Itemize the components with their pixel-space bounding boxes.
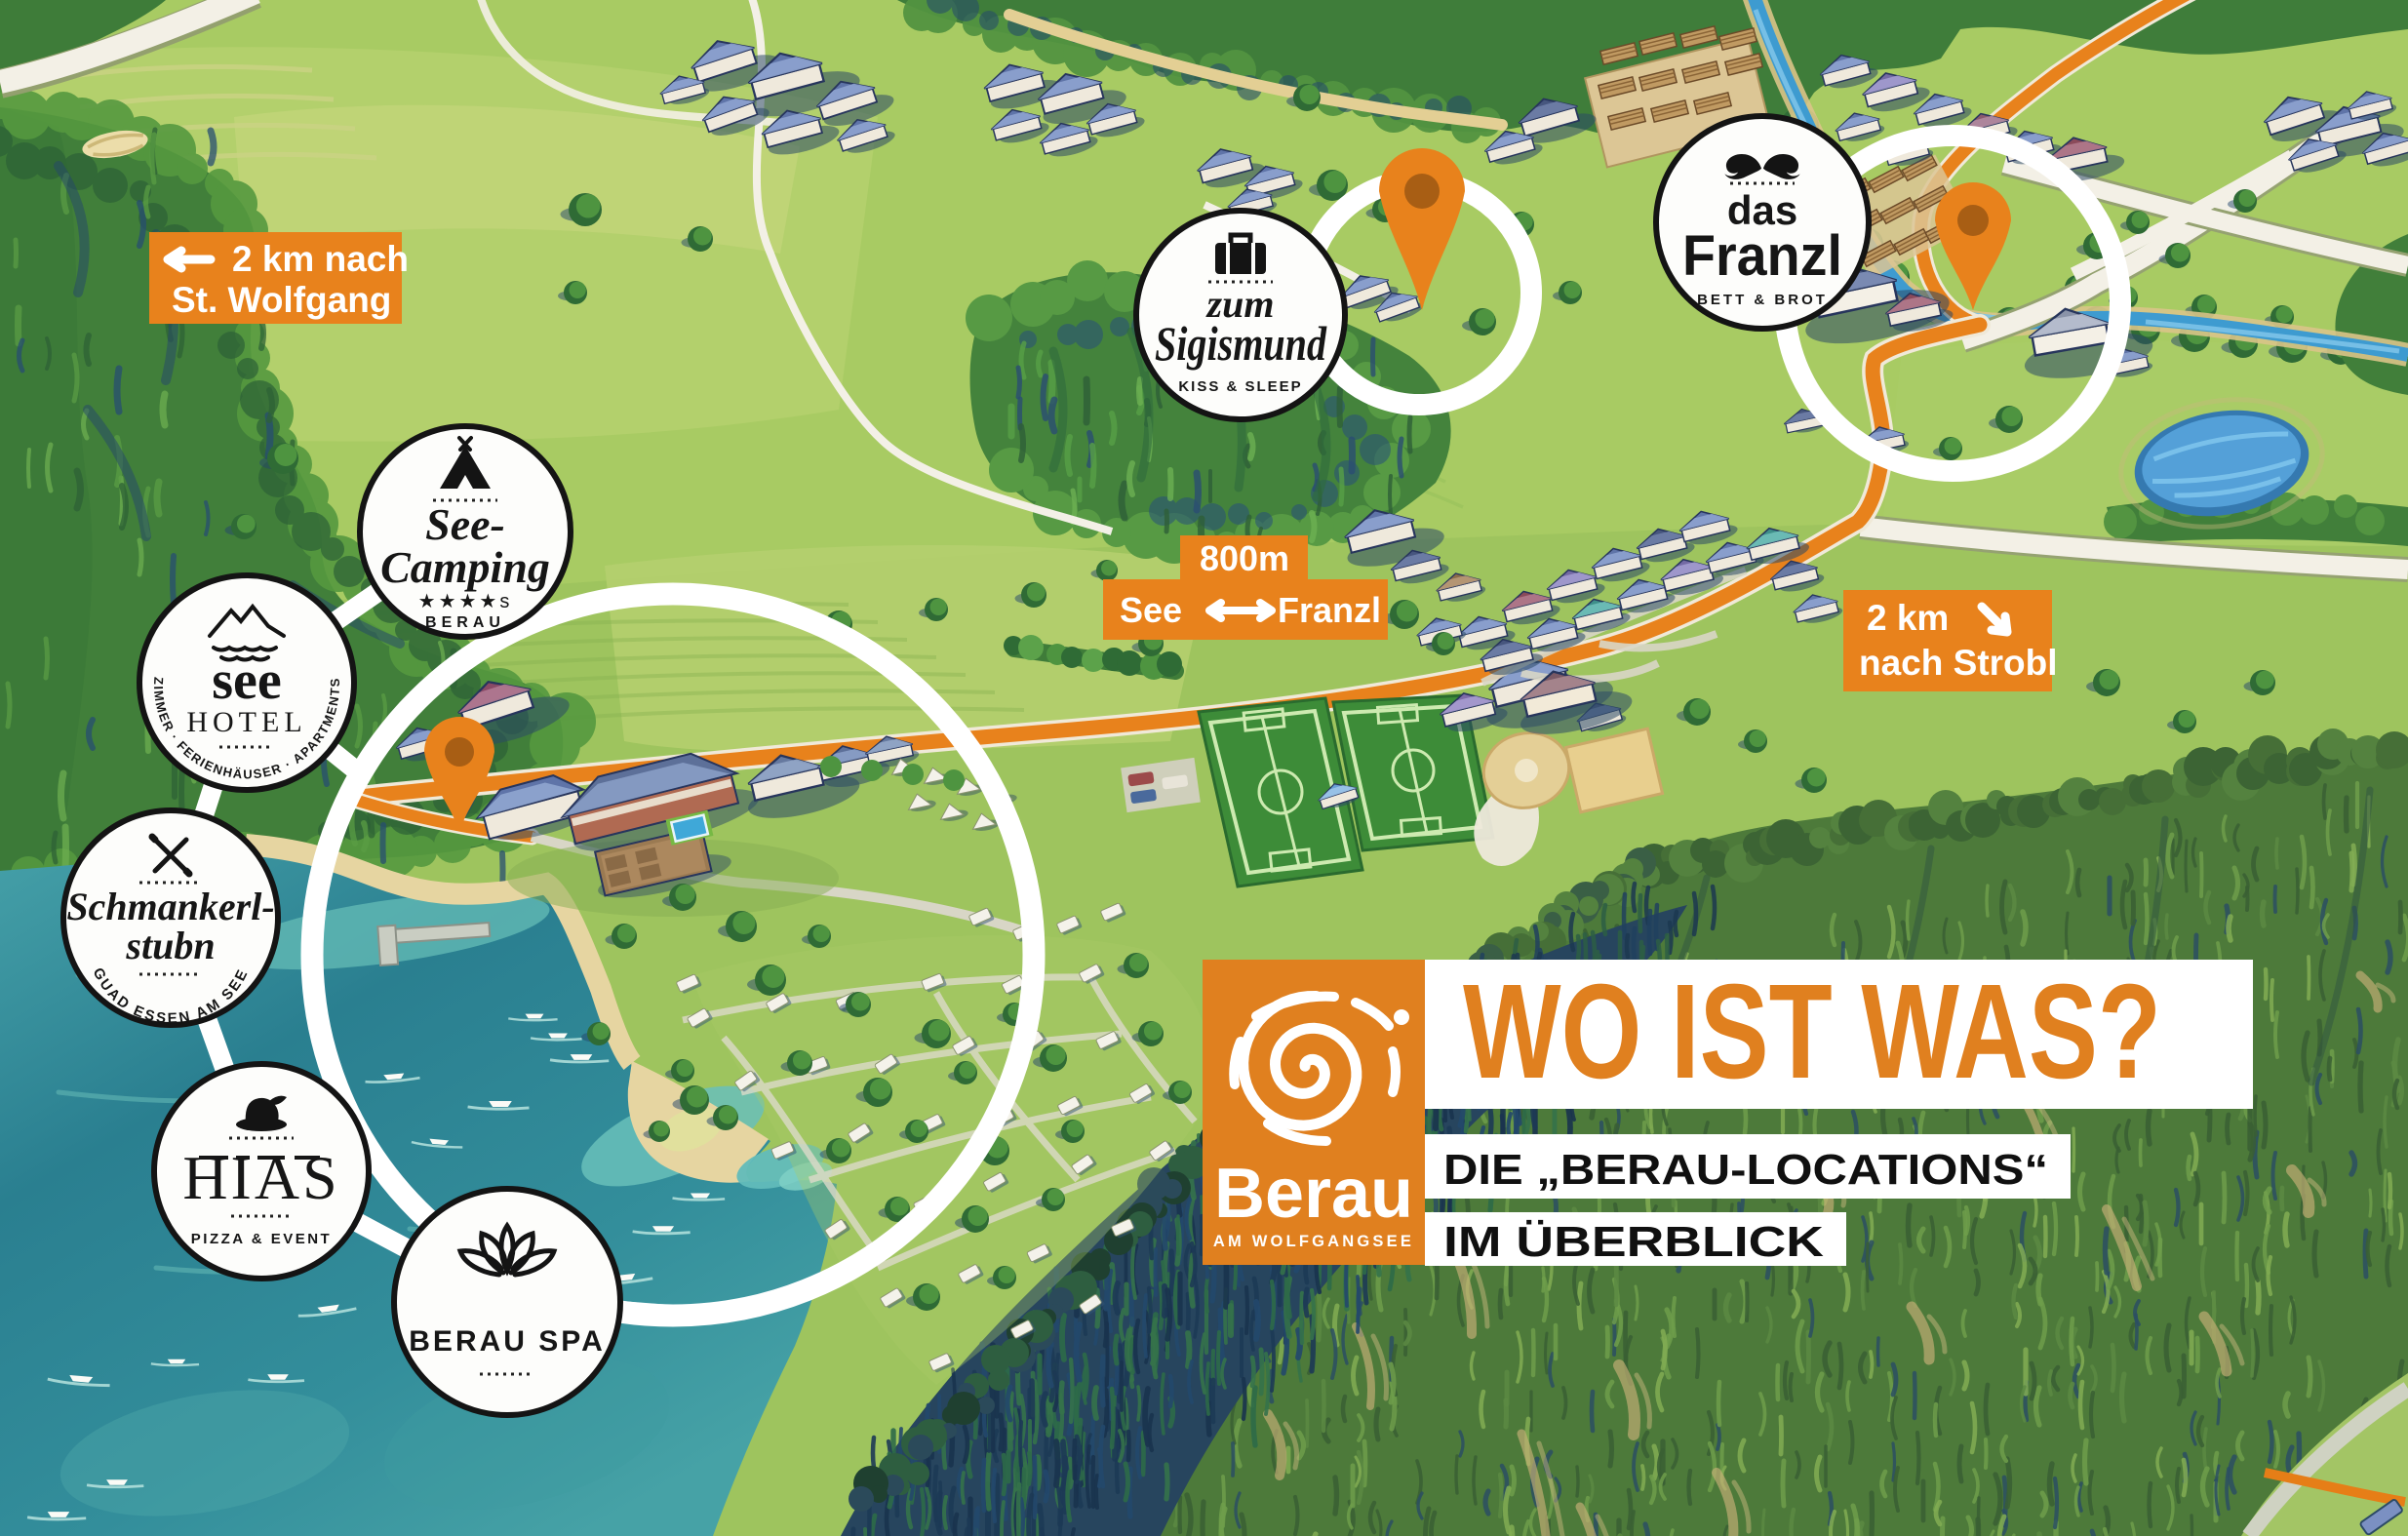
svg-text:Schmankerl-: Schmankerl- — [66, 885, 274, 928]
svg-text:KISS & SLEEP: KISS & SLEEP — [1178, 378, 1302, 395]
svg-text:PIZZA & EVENT: PIZZA & EVENT — [191, 1231, 332, 1247]
svg-text:BERAU: BERAU — [425, 614, 505, 631]
svg-text:WO IST WAS?: WO IST WAS? — [1463, 957, 2161, 1107]
svg-text:stubn: stubn — [125, 924, 215, 967]
svg-text:AM WOLFGANGSEE: AM WOLFGANGSEE — [1213, 1233, 1414, 1250]
svg-text:HIAS: HIAS — [182, 1143, 339, 1212]
svg-text:See: See — [1120, 590, 1182, 630]
svg-text:IM ÜBERBLICK: IM ÜBERBLICK — [1443, 1218, 1824, 1266]
svg-text:nach Strobl: nach Strobl — [1859, 643, 2058, 683]
svg-text:Franzl: Franzl — [1278, 590, 1381, 630]
svg-text:Franzl: Franzl — [1682, 224, 1842, 288]
svg-text:★★★★s: ★★★★s — [418, 591, 513, 612]
svg-text:Sigismund: Sigismund — [1155, 316, 1327, 371]
svg-text:800m: 800m — [1200, 538, 1289, 578]
svg-text:BETT & BROT: BETT & BROT — [1697, 292, 1828, 308]
svg-text:2 km nach: 2 km nach — [232, 239, 409, 279]
svg-text:2 km: 2 km — [1867, 598, 1949, 638]
svg-text:St. Wolfgang: St. Wolfgang — [172, 280, 391, 320]
svg-text:DIE „BERAU-LOCATIONS“: DIE „BERAU-LOCATIONS“ — [1443, 1146, 2048, 1194]
svg-text:BERAU SPA: BERAU SPA — [409, 1325, 605, 1358]
svg-text:HOTEL: HOTEL — [186, 706, 306, 738]
svg-text:Berau: Berau — [1214, 1155, 1413, 1233]
svg-text:Camping: Camping — [380, 542, 550, 592]
svg-text:see: see — [212, 650, 282, 711]
